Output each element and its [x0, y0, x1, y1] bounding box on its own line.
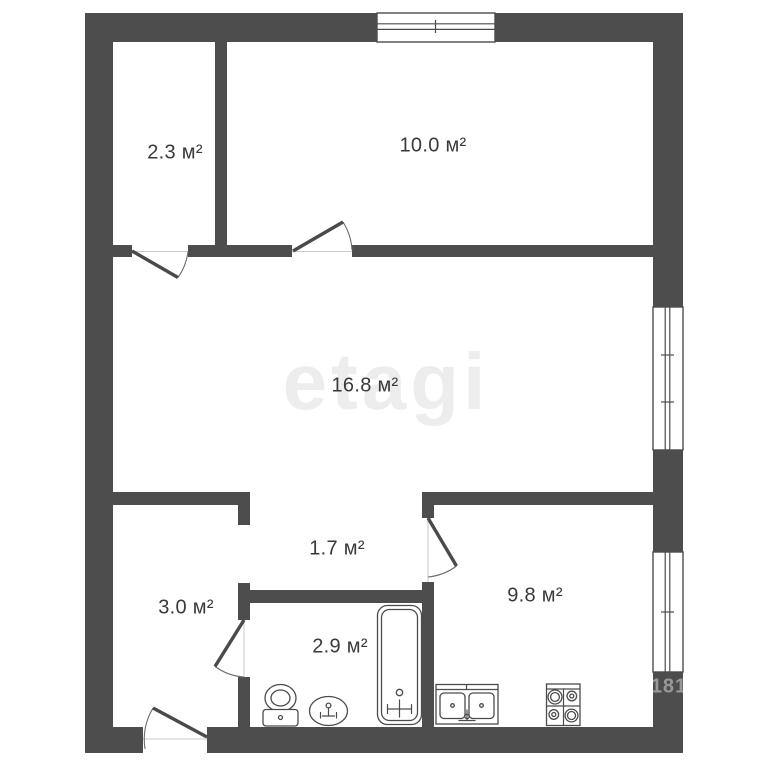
door-room10: [292, 222, 352, 252]
door-kitchen: [428, 518, 457, 582]
room-area-label-living: 16.8 м²: [332, 375, 399, 398]
window-right-upper: [653, 307, 683, 450]
door-bathroom: [215, 620, 244, 677]
window-right-lower: [653, 552, 683, 672]
window-top: [377, 13, 495, 42]
kitchen-sink-icon: [436, 685, 498, 725]
room-area-label-closet: 2.3 м²: [147, 142, 203, 165]
corner-watermark: 181: [651, 676, 687, 699]
room-area-label-hall: 1.7 м²: [309, 538, 365, 561]
room-area-label-entry: 3.0 м²: [158, 597, 214, 620]
room-area-label-kitchen: 9.8 м²: [507, 585, 563, 608]
door-entrance: [143, 708, 207, 749]
room-area-label-bathroom: 2.9 м²: [312, 636, 368, 659]
bathtub-icon: [378, 606, 422, 725]
room-area-label-room10: 10.0 м²: [400, 135, 467, 158]
stove-icon: [547, 684, 581, 726]
washbasin-icon: [310, 697, 348, 726]
door-closet: [132, 251, 188, 278]
toilet-icon: [263, 685, 298, 727]
floor-plan: etagi: [0, 0, 768, 768]
